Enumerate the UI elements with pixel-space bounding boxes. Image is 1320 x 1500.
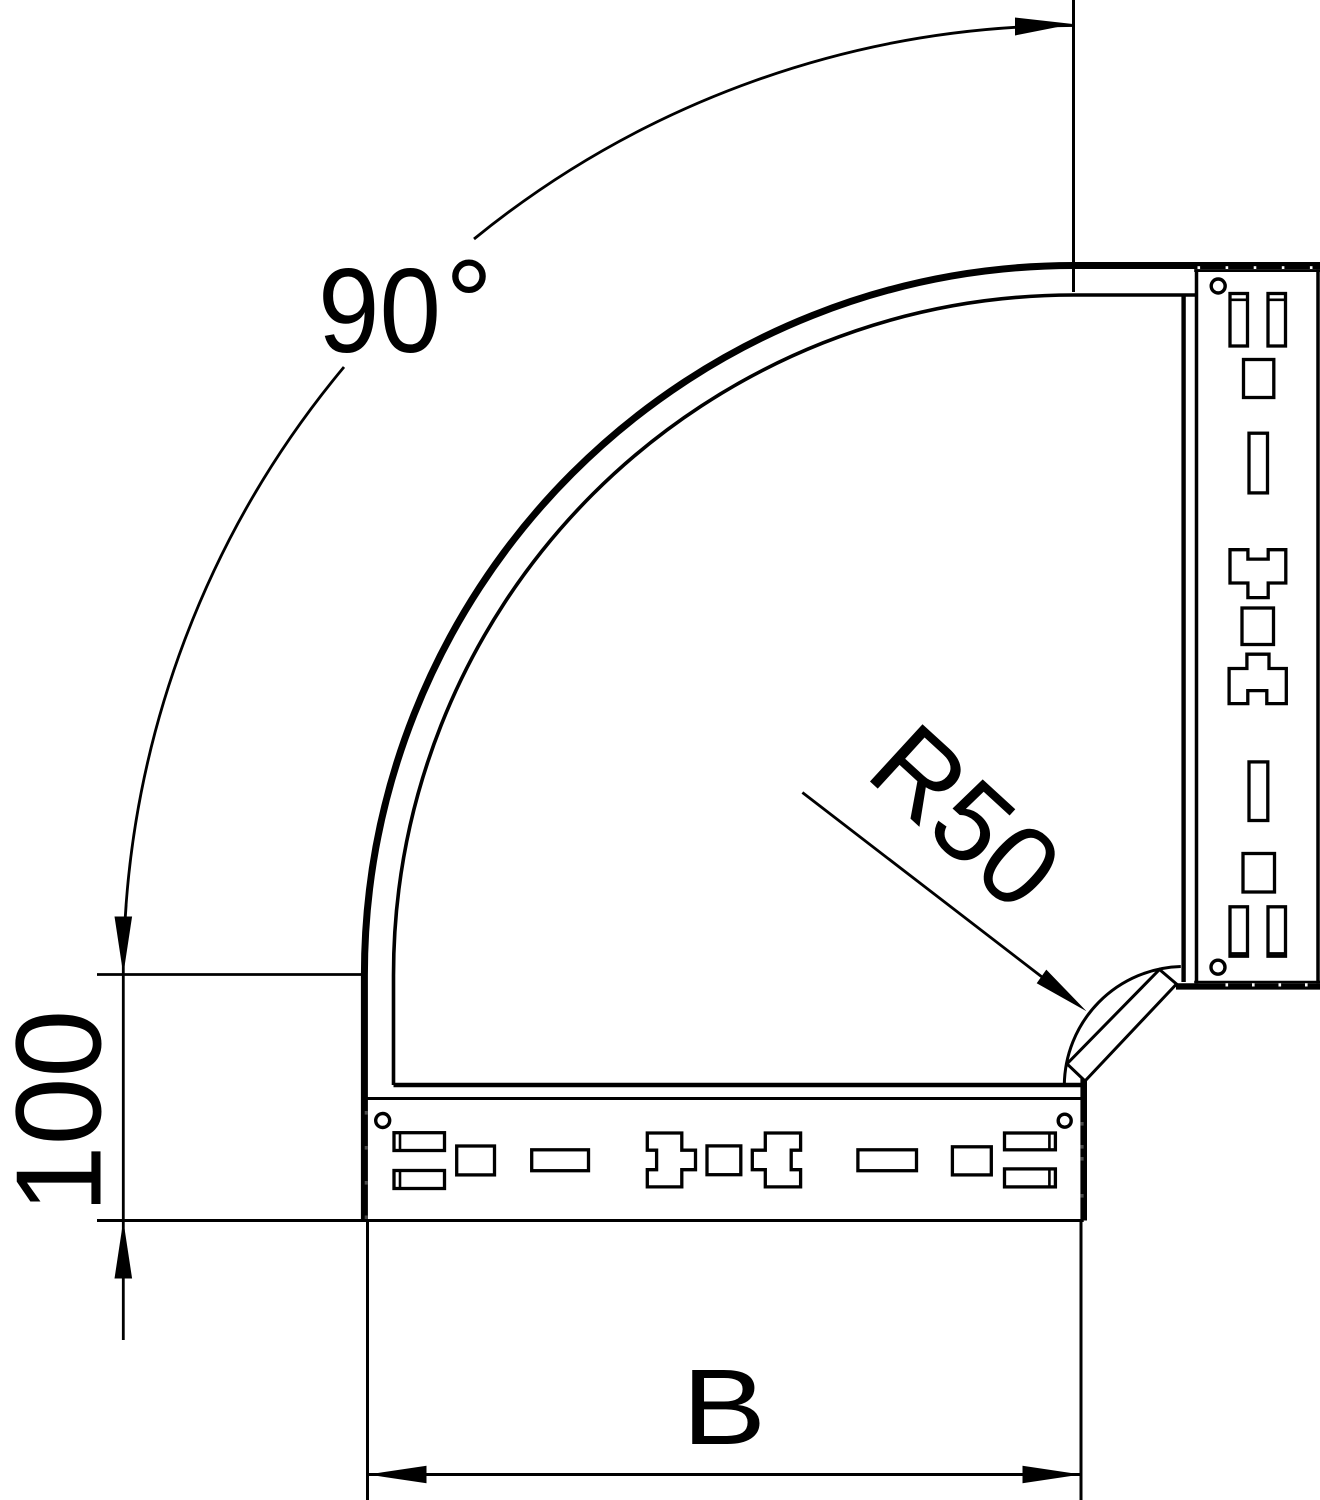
svg-text:°: ° <box>445 236 493 370</box>
svg-text:B: B <box>682 1347 766 1467</box>
svg-text:90: 90 <box>318 244 441 378</box>
svg-text:100: 100 <box>0 1010 127 1214</box>
